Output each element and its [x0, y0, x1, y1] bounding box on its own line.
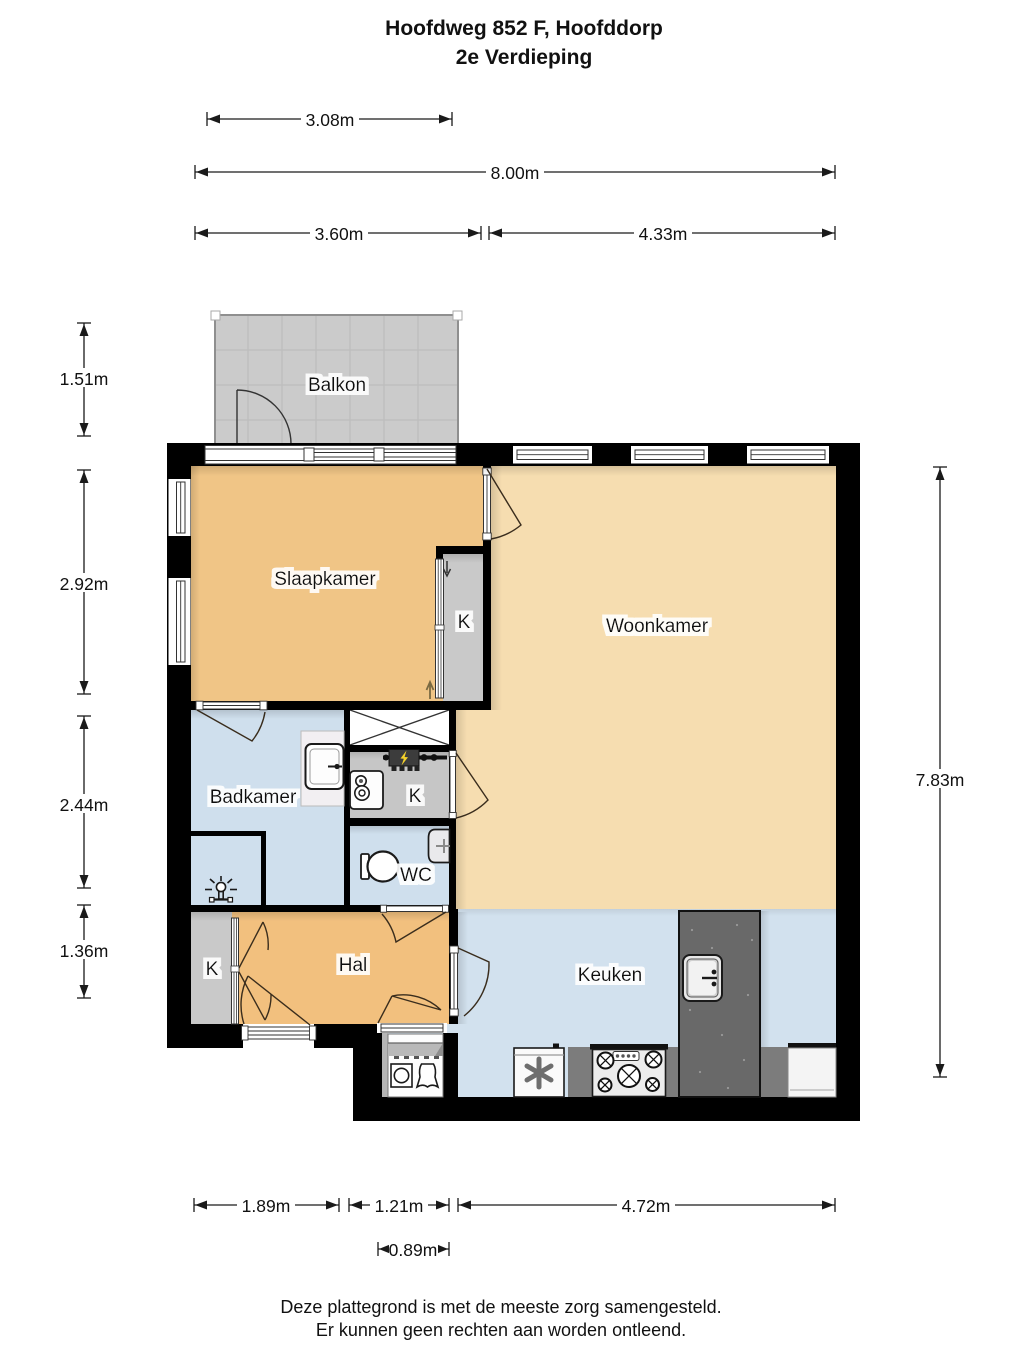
svg-text:Balkon: Balkon	[308, 375, 366, 396]
svg-text:2.92m: 2.92m	[60, 574, 109, 594]
svg-text:Badkamer: Badkamer	[210, 787, 297, 808]
svg-text:0.89m: 0.89m	[389, 1240, 438, 1260]
svg-text:WC: WC	[400, 865, 432, 886]
svg-text:Hal: Hal	[339, 955, 368, 976]
svg-text:1.51m: 1.51m	[60, 369, 109, 389]
svg-text:8.00m: 8.00m	[491, 163, 540, 183]
svg-text:1.89m: 1.89m	[242, 1196, 291, 1216]
svg-text:Woonkamer: Woonkamer	[606, 616, 709, 637]
svg-text:2.44m: 2.44m	[60, 795, 109, 815]
svg-text:4.72m: 4.72m	[622, 1196, 671, 1216]
svg-text:K: K	[458, 612, 471, 633]
svg-text:1.36m: 1.36m	[60, 941, 109, 961]
svg-text:Deze plattegrond is met de mee: Deze plattegrond is met de meeste zorg s…	[280, 1297, 721, 1317]
svg-text:Er kunnen geen rechten aan wor: Er kunnen geen rechten aan worden ontlee…	[316, 1320, 686, 1340]
svg-text:4.33m: 4.33m	[639, 224, 688, 244]
svg-text:K: K	[206, 959, 219, 980]
svg-text:3.60m: 3.60m	[315, 224, 364, 244]
svg-text:K: K	[409, 786, 422, 807]
svg-text:2e Verdieping: 2e Verdieping	[456, 46, 593, 69]
svg-text:Slaapkamer: Slaapkamer	[274, 569, 376, 590]
svg-text:3.08m: 3.08m	[306, 110, 355, 130]
svg-text:7.83m: 7.83m	[916, 770, 965, 790]
svg-text:Keuken: Keuken	[578, 965, 642, 986]
svg-text:Hoofdweg 852 F, Hoofddorp: Hoofdweg 852 F, Hoofddorp	[385, 17, 663, 40]
svg-text:1.21m: 1.21m	[375, 1196, 424, 1216]
